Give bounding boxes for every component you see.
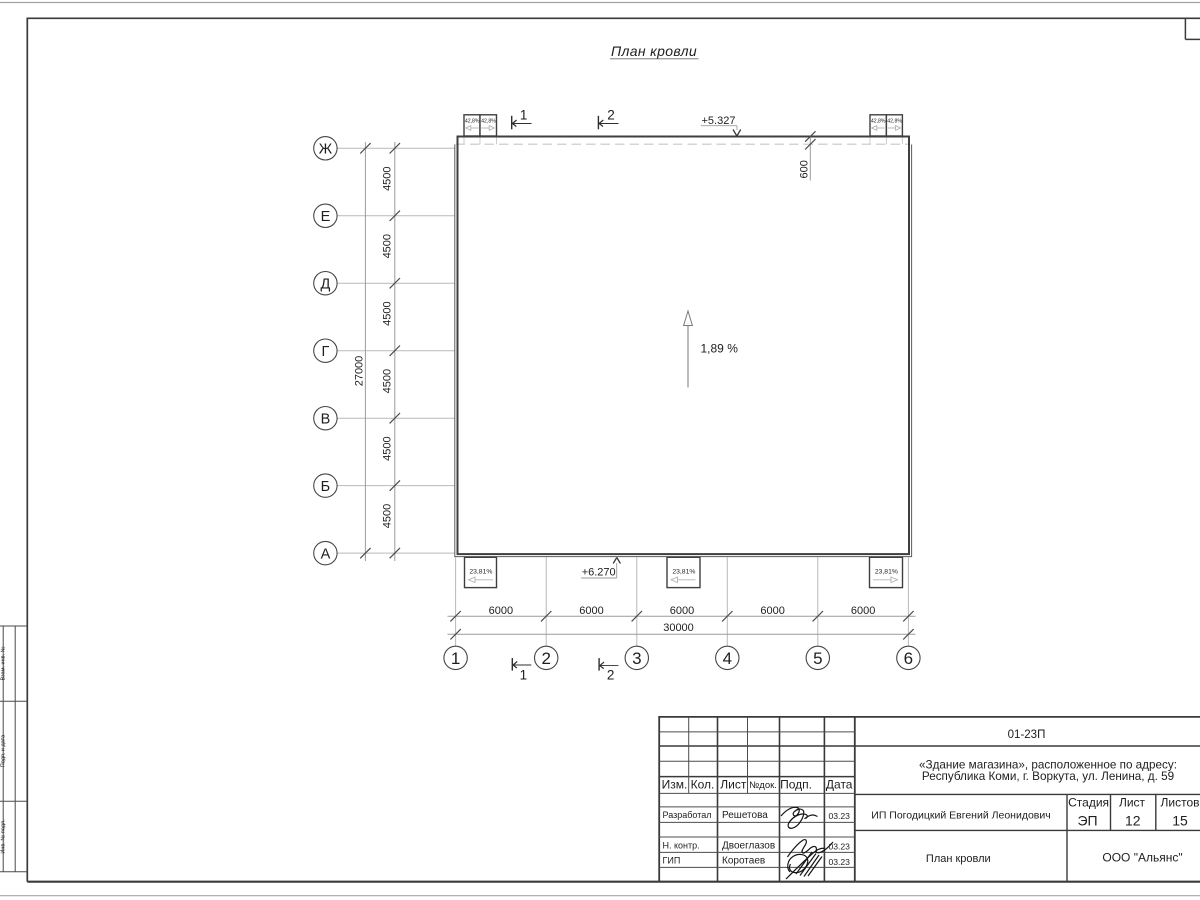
svg-text:Стадия: Стадия <box>1068 796 1109 810</box>
svg-text:1: 1 <box>520 667 528 682</box>
svg-text:03.23: 03.23 <box>828 811 850 821</box>
svg-text:Н. контр.: Н. контр. <box>663 840 700 850</box>
svg-text:ЭП: ЭП <box>1077 812 1097 828</box>
svg-text:Разработал: Разработал <box>663 810 712 820</box>
svg-text:А: А <box>321 546 331 562</box>
svg-text:42,8%: 42,8% <box>481 119 496 125</box>
svg-text:Подп. и дата: Подп. и дата <box>1 734 7 767</box>
svg-text:6000: 6000 <box>670 605 694 617</box>
svg-text:2: 2 <box>607 108 615 123</box>
svg-text:Б: Б <box>321 479 331 495</box>
svg-text:Двоеглазов: Двоеглазов <box>722 840 775 851</box>
svg-text:ИП Погодицкий Евгений Леонидов: ИП Погодицкий Евгений Леонидович <box>871 810 1050 822</box>
svg-text:План кровли: План кровли <box>611 43 697 59</box>
svg-text:27000: 27000 <box>354 356 366 387</box>
svg-text:30000: 30000 <box>663 622 694 634</box>
svg-text:Подп.: Подп. <box>780 778 812 792</box>
svg-text:Инв. № подл.: Инв. № подл. <box>1 819 7 854</box>
svg-text:4500: 4500 <box>382 301 394 325</box>
svg-text:4500: 4500 <box>382 504 394 528</box>
svg-text:ООО "Альянс": ООО "Альянс" <box>1102 850 1182 864</box>
svg-text:Республика Коми, г. Воркута, у: Республика Коми, г. Воркута, ул. Ленина,… <box>922 770 1174 783</box>
svg-text:01-23П: 01-23П <box>1008 729 1046 741</box>
svg-text:Е: Е <box>321 209 331 225</box>
svg-text:Кол.: Кол. <box>691 778 715 792</box>
svg-text:1: 1 <box>520 107 528 122</box>
svg-text:Взам. инв. №: Взам. инв. № <box>1 646 7 680</box>
svg-text:600: 600 <box>799 160 811 178</box>
svg-text:Дата: Дата <box>826 778 853 792</box>
svg-text:+5.327: +5.327 <box>702 115 736 127</box>
svg-text:2: 2 <box>541 649 550 668</box>
svg-text:№док.: №док. <box>749 780 777 791</box>
svg-text:Листов: Листов <box>1161 796 1200 810</box>
svg-text:Ж: Ж <box>319 142 333 158</box>
svg-text:+6.270: +6.270 <box>582 567 616 579</box>
svg-text:2: 2 <box>607 667 615 682</box>
svg-text:Д: Д <box>320 276 330 292</box>
svg-text:3: 3 <box>632 649 641 668</box>
svg-text:Коротаев: Коротаев <box>722 855 765 866</box>
svg-text:15: 15 <box>1172 812 1188 828</box>
svg-text:Лист: Лист <box>1119 796 1146 810</box>
svg-text:Изм.: Изм. <box>662 778 688 792</box>
svg-text:42,8%: 42,8% <box>887 119 902 125</box>
svg-text:В: В <box>321 411 331 427</box>
svg-text:23,81%: 23,81% <box>672 569 695 576</box>
svg-text:23,81%: 23,81% <box>875 569 898 576</box>
svg-text:6000: 6000 <box>489 605 513 617</box>
svg-text:4500: 4500 <box>382 234 394 258</box>
svg-text:6000: 6000 <box>579 605 603 617</box>
svg-text:6000: 6000 <box>760 605 784 617</box>
svg-text:5: 5 <box>813 649 822 668</box>
svg-text:12: 12 <box>1125 812 1141 828</box>
svg-text:Г: Г <box>321 344 329 360</box>
svg-text:4500: 4500 <box>382 166 394 190</box>
svg-text:Решетова: Решетова <box>722 810 768 821</box>
svg-text:6: 6 <box>904 649 913 668</box>
svg-text:23,81%: 23,81% <box>469 569 492 576</box>
svg-text:42,8%: 42,8% <box>465 119 480 125</box>
svg-text:4: 4 <box>723 649 732 668</box>
svg-text:Лист: Лист <box>720 778 747 792</box>
svg-text:1,89 %: 1,89 % <box>701 341 739 355</box>
svg-text:4500: 4500 <box>382 436 394 460</box>
svg-text:42,8%: 42,8% <box>871 119 886 125</box>
svg-text:4500: 4500 <box>382 369 394 393</box>
svg-text:ГИП: ГИП <box>663 855 681 865</box>
svg-text:1: 1 <box>451 649 460 668</box>
svg-text:План кровли: План кровли <box>926 853 991 865</box>
svg-text:03.23: 03.23 <box>828 857 850 867</box>
svg-text:6000: 6000 <box>851 605 875 617</box>
